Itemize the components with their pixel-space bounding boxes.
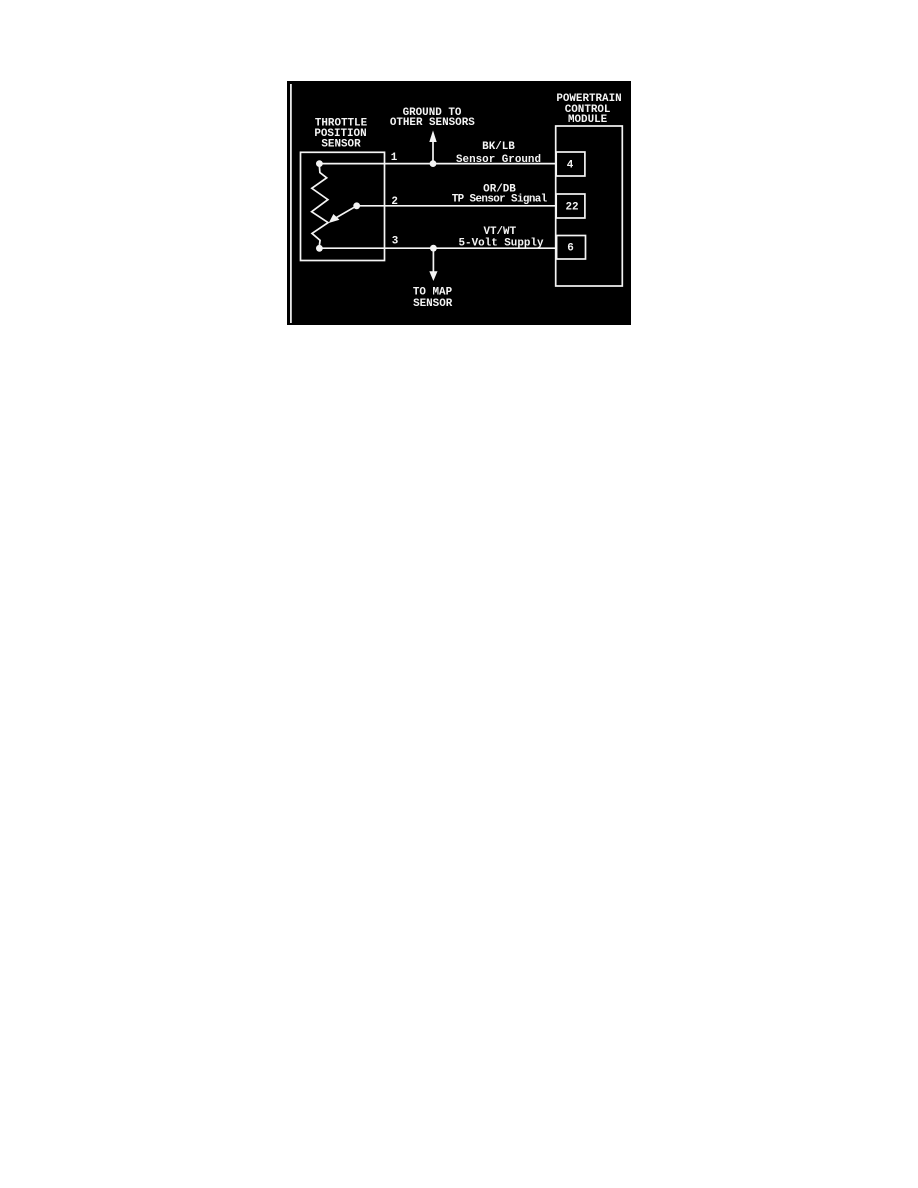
svg-text:TO MAP: TO MAP (413, 287, 453, 299)
svg-text:1: 1 (391, 152, 398, 164)
svg-text:3: 3 (392, 236, 399, 248)
svg-text:VT/WT: VT/WT (483, 226, 516, 238)
svg-text:BK/LB: BK/LB (482, 141, 515, 153)
svg-text:Sensor Ground: Sensor Ground (456, 154, 541, 166)
svg-text:SENSOR: SENSOR (321, 139, 361, 151)
svg-text:SENSOR: SENSOR (413, 298, 453, 310)
svg-text:TP Sensor Signal: TP Sensor Signal (452, 194, 548, 206)
svg-text:5-Volt Supply: 5-Volt Supply (459, 238, 544, 250)
svg-text:6: 6 (567, 243, 574, 255)
svg-text:OTHER SENSORS: OTHER SENSORS (390, 117, 475, 129)
svg-text:2: 2 (391, 196, 398, 208)
svg-text:MODULE: MODULE (568, 114, 608, 126)
svg-text:22: 22 (565, 202, 578, 214)
svg-text:4: 4 (567, 160, 574, 172)
